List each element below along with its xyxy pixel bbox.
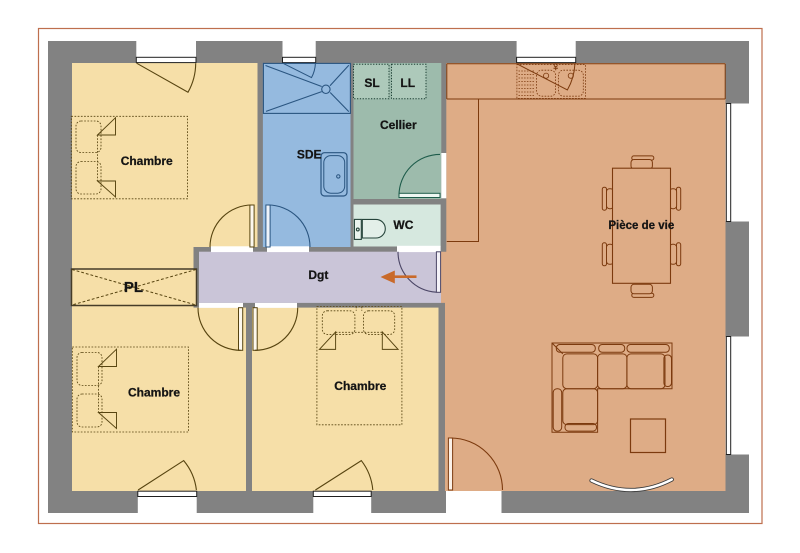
svg-text:Dgt: Dgt — [308, 268, 328, 282]
svg-text:LL: LL — [400, 76, 415, 90]
svg-text:Chambre: Chambre — [128, 386, 180, 400]
svg-text:PL: PL — [124, 279, 143, 296]
svg-text:WC: WC — [393, 218, 413, 232]
svg-text:Pièce de vie: Pièce de vie — [608, 220, 674, 232]
svg-text:Cellier: Cellier — [380, 118, 417, 132]
svg-text:Chambre: Chambre — [121, 154, 173, 168]
svg-text:Chambre: Chambre — [334, 379, 386, 393]
svg-text:SL: SL — [364, 76, 379, 90]
svg-text:SDE: SDE — [297, 148, 322, 162]
